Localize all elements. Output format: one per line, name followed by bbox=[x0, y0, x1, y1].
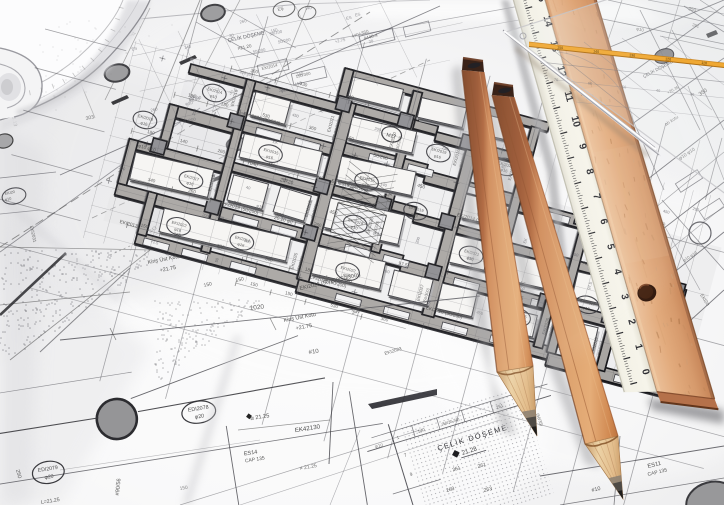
svg-text:30: 30 bbox=[690, 92, 695, 96]
svg-text:120: 120 bbox=[665, 57, 671, 62]
svg-text:110: 110 bbox=[701, 61, 707, 66]
